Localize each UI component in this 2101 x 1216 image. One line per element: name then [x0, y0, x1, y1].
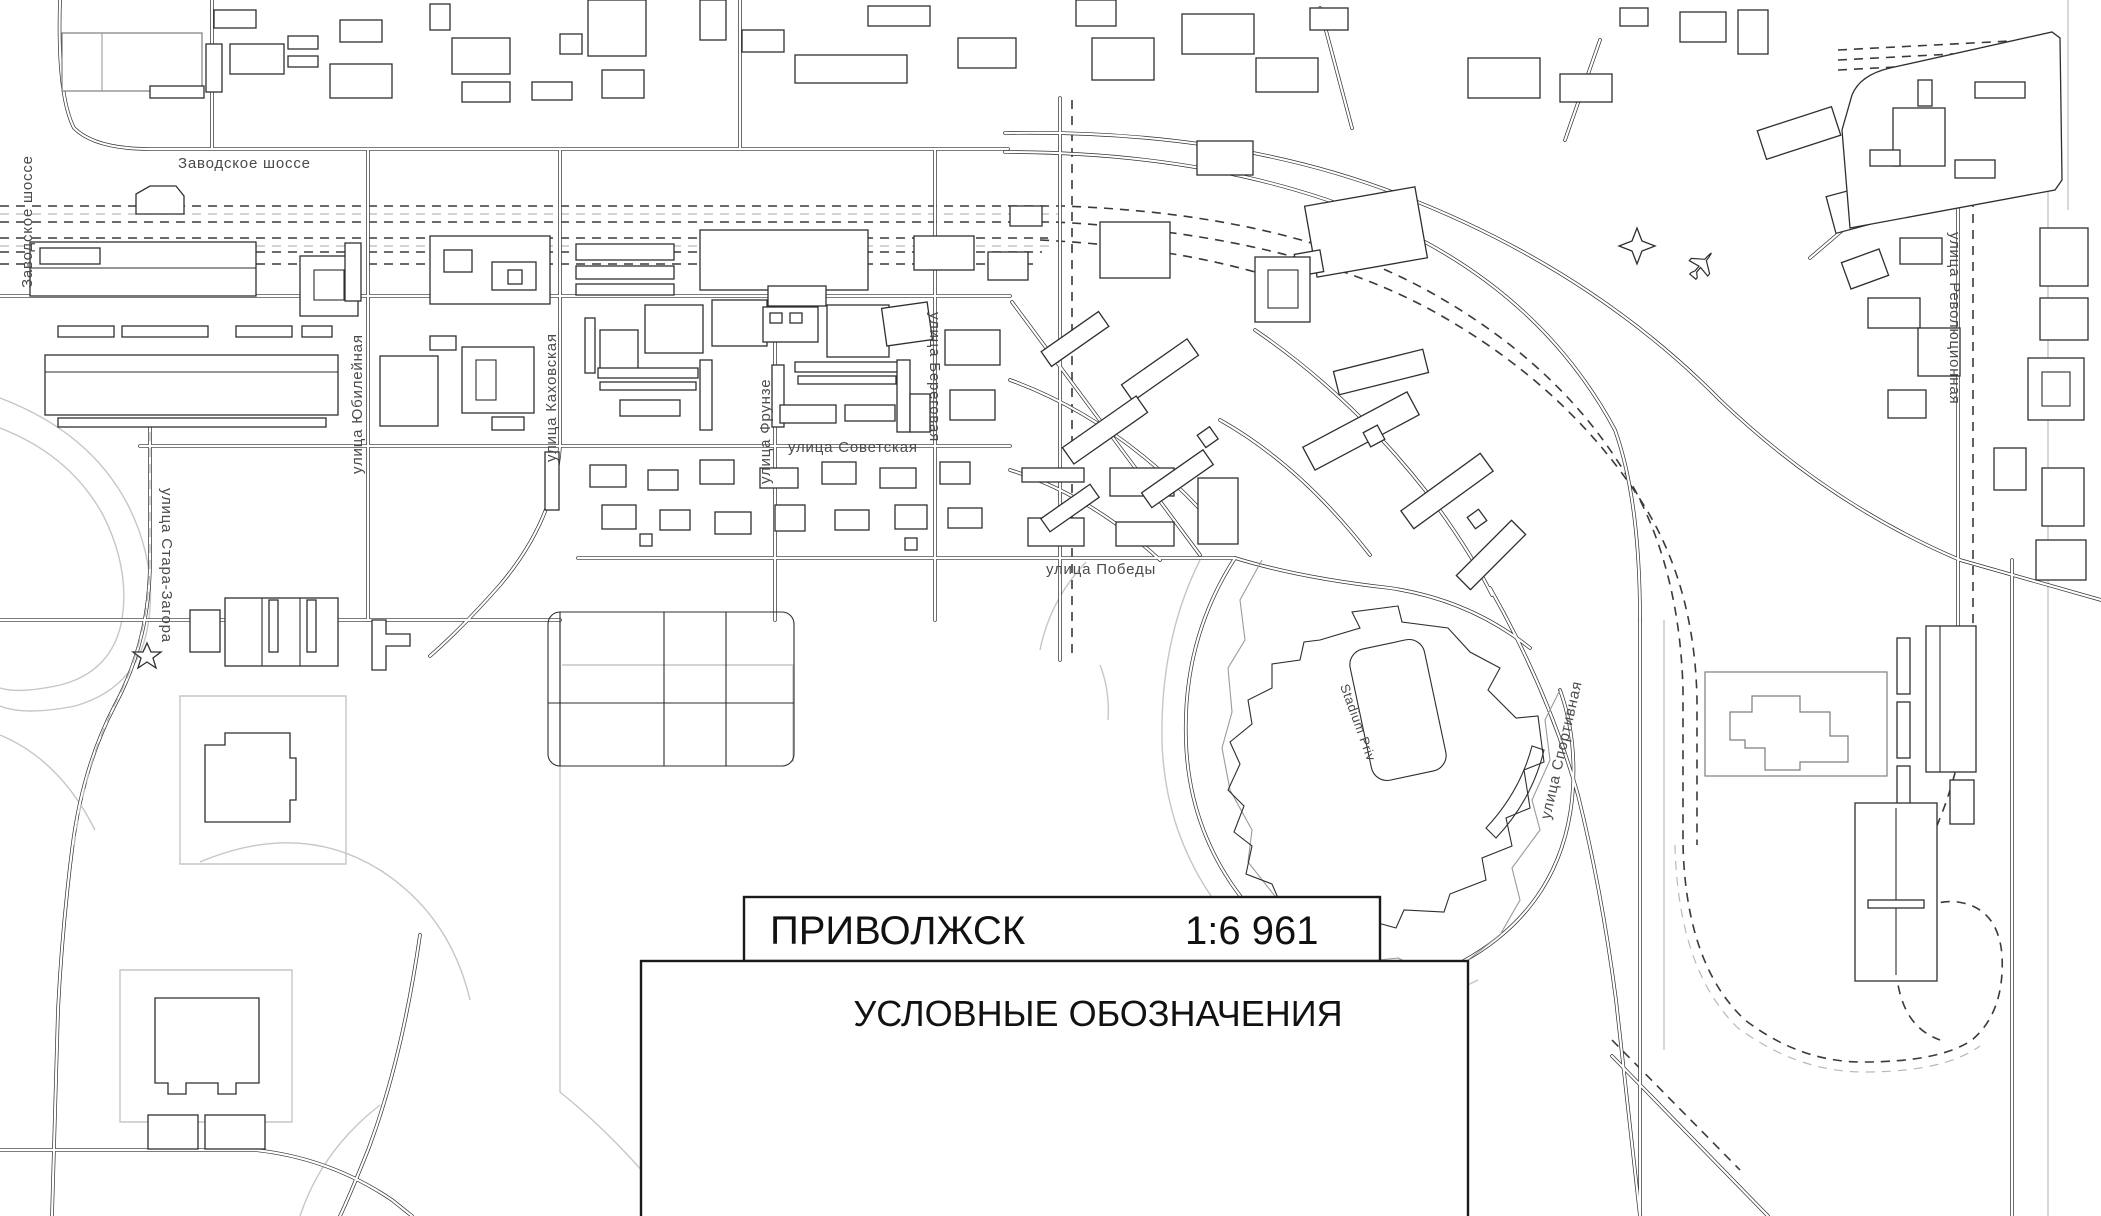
street-label-beregovaya: улица Береговая	[926, 312, 943, 442]
map-screenshot: Заводское шоссе Заводское шоссе улица Юб…	[0, 0, 2101, 1216]
street-label-revolyutsionnaya: улица Революционная	[1946, 232, 1963, 404]
stadium-label: Stadium Priv	[1337, 682, 1379, 763]
airplane-icon	[1683, 245, 1721, 283]
street-label-zavodskoe-shosse: Заводское шоссе	[178, 155, 311, 172]
street-label-pobedy: улица Победы	[1046, 561, 1156, 578]
map-title-panel: ПРИВОЛЖСК 1:6 961	[744, 897, 1380, 961]
street-label-sovetskaya: улица Советская	[788, 439, 918, 456]
street-label-frunze: улица Фрунзе	[757, 379, 774, 484]
street-label-kakhovskaya: улица Каховская	[543, 333, 560, 462]
street-label-yubileynaya: улица Юбилейная	[349, 334, 366, 474]
city-map-canvas: Заводское шоссе Заводское шоссе улица Юб…	[0, 0, 2101, 1216]
street-label-stara-zagora: улица Стара-Загора	[158, 488, 175, 643]
street-label-zavodskoe-shosse-left: Заводское шоссе	[19, 155, 36, 288]
city-name: ПРИВОЛЖСК	[770, 909, 1026, 953]
star-icon	[1619, 228, 1655, 264]
legend-panel: УСЛОВНЫЕ ОБОЗНАЧЕНИЯ	[641, 961, 1468, 1216]
legend-title: УСЛОВНЫЕ ОБОЗНАЧЕНИЯ	[853, 993, 1342, 1034]
map-scale: 1:6 961	[1185, 909, 1318, 953]
symbols-layer	[133, 228, 1721, 668]
